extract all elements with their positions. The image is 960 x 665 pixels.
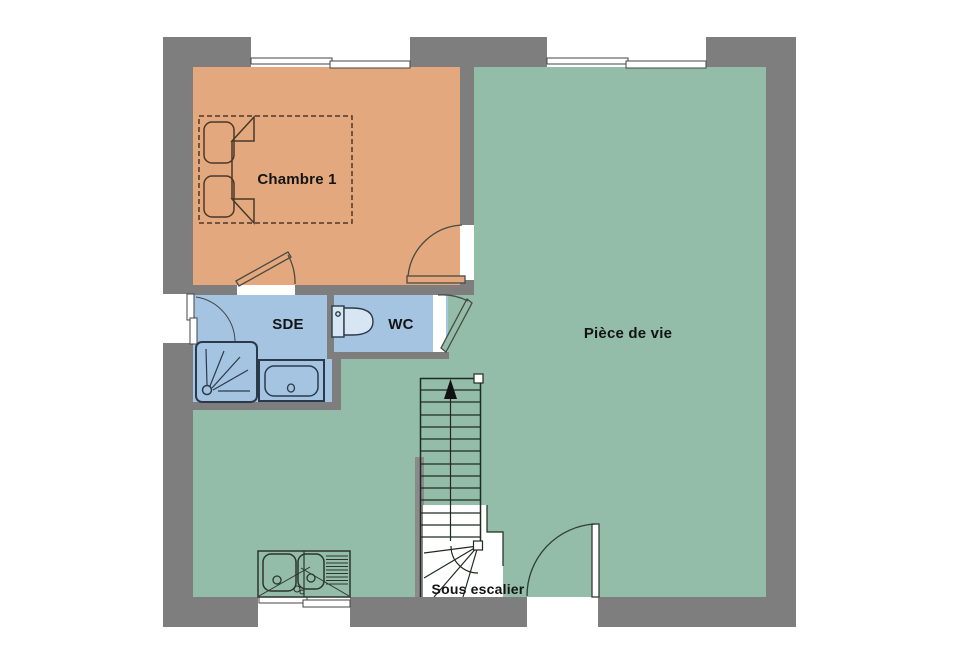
wc-door-opening: [433, 295, 446, 352]
sde-door-opening: [237, 285, 295, 295]
floor-plan: Chambre 1 SDE WC Pièce de vie Sous escal…: [0, 0, 960, 665]
wall-right: [766, 67, 796, 597]
label-sde: SDE: [258, 316, 318, 333]
entrance-door-opening: [527, 597, 598, 627]
label-wc: WC: [371, 316, 431, 333]
window-top-left-opening: [251, 37, 410, 67]
wall-chambre-bottom: [193, 285, 462, 295]
under-stair-floor-upper: [423, 505, 487, 532]
window-left-opening: [163, 294, 193, 343]
wall-sde-bottom: [193, 402, 341, 410]
label-chambre-1: Chambre 1: [237, 171, 357, 188]
window-bottom-opening: [258, 597, 350, 627]
room-sde: [193, 295, 332, 402]
label-sous-escalier: Sous escalier: [417, 581, 539, 597]
label-piece-de-vie: Pièce de vie: [568, 325, 688, 342]
window-top-right-opening: [547, 37, 706, 67]
wall-sde-wc-separator: [327, 295, 334, 352]
wall-wc-bottom: [327, 352, 449, 359]
chambre-door-opening: [460, 225, 474, 280]
